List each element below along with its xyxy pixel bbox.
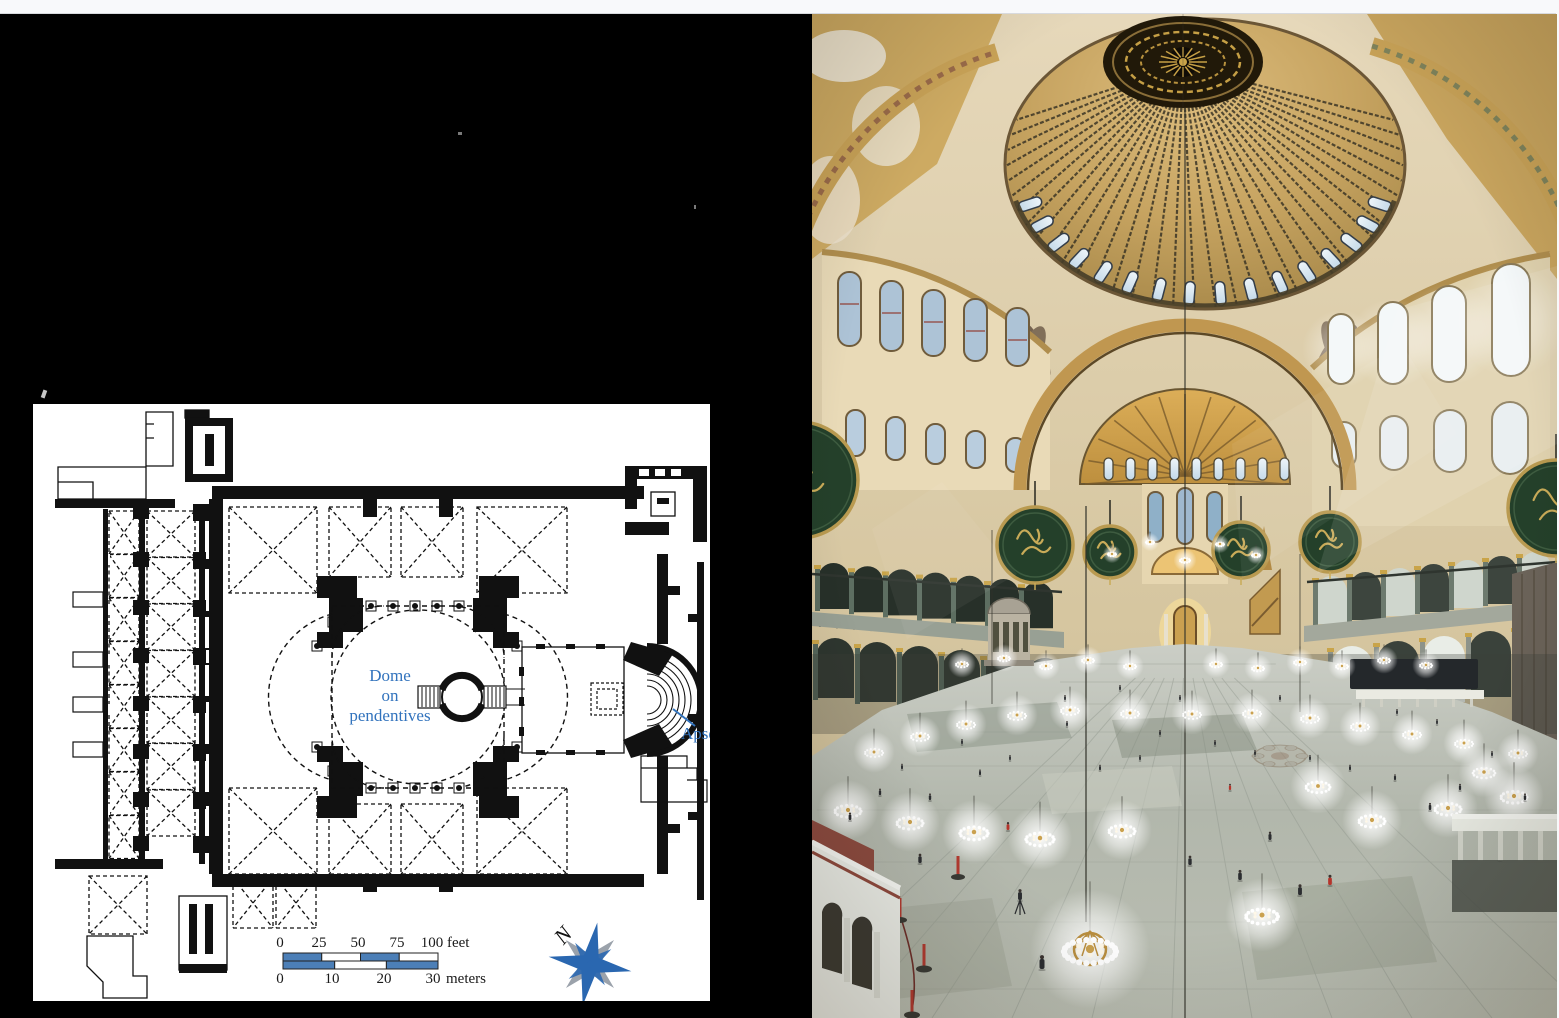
- aisle-bay: [401, 507, 463, 577]
- plan-northwest-ramp: [58, 410, 233, 499]
- narthex-inner-bay: [147, 790, 195, 836]
- hagia-sophia-interior: [812, 14, 1557, 1018]
- feet-tick-25: 25: [312, 935, 327, 951]
- narthex-inner-bay: [147, 651, 195, 697]
- feet-tick-50: 50: [351, 935, 366, 951]
- compass-rose: N: [541, 915, 638, 1001]
- narthex-inner-bay: [147, 558, 195, 604]
- plan-bema: [519, 644, 624, 755]
- west-porch: [73, 652, 103, 667]
- compass-hub: [587, 961, 593, 967]
- plan-ambo: [418, 675, 525, 718]
- narthex-inner-bay: [147, 511, 195, 557]
- meters-tick-0: 0: [276, 971, 284, 987]
- meters-tick-10: 10: [325, 971, 340, 987]
- aisle-bay: [329, 507, 391, 577]
- aisle-bay: [401, 804, 463, 874]
- top-bar: [0, 0, 1559, 14]
- floor-plan-panel: Dome on pendentives Apse 0 25 50 75 100 …: [33, 404, 710, 1001]
- dome-label-line2: on: [382, 686, 400, 705]
- aisle-bay: [229, 507, 317, 593]
- speck-artifact-3: [41, 390, 47, 399]
- speck-artifact-1: [458, 132, 462, 135]
- aisle-bay: [89, 876, 147, 934]
- scale-bar: 0 25 50 75 100 feet 0 10 20 30 meters: [276, 935, 486, 987]
- feet-tick-75: 75: [390, 935, 405, 951]
- aisle-bay: [89, 876, 147, 934]
- aisle-bay: [229, 788, 317, 874]
- floor-plan-figure: Dome on pendentives Apse 0 25 50 75 100 …: [33, 404, 710, 1001]
- narthex-inner-bay: [147, 697, 195, 743]
- aisle-bay: [229, 507, 317, 593]
- apse-label: Apse: [681, 724, 710, 743]
- feet-unit: feet: [447, 935, 470, 951]
- west-porch: [73, 742, 103, 757]
- meters-unit: meters: [446, 971, 486, 987]
- feet-tick-100: 100: [421, 935, 444, 951]
- slide-background: { "floor_plan": { "dome_label": { "line1…: [0, 0, 1559, 1018]
- dome-label-line3: pendentives: [349, 706, 430, 725]
- narthex-inner-bay: [147, 744, 195, 790]
- meters-tick-30: 30: [426, 971, 441, 987]
- west-porch: [73, 697, 103, 712]
- west-porch: [73, 592, 103, 607]
- vignette: [812, 14, 1557, 1018]
- aisle-bay: [229, 788, 317, 874]
- speck-artifact-2: [694, 205, 696, 209]
- meters-tick-20: 20: [377, 971, 392, 987]
- dome-label-line1: Dome: [369, 666, 411, 685]
- narthex-inner-bay: [147, 604, 195, 650]
- feet-tick-0: 0: [276, 935, 284, 951]
- plan-southwest-ramp: [87, 896, 227, 998]
- hagia-sophia-photo: [812, 14, 1557, 1018]
